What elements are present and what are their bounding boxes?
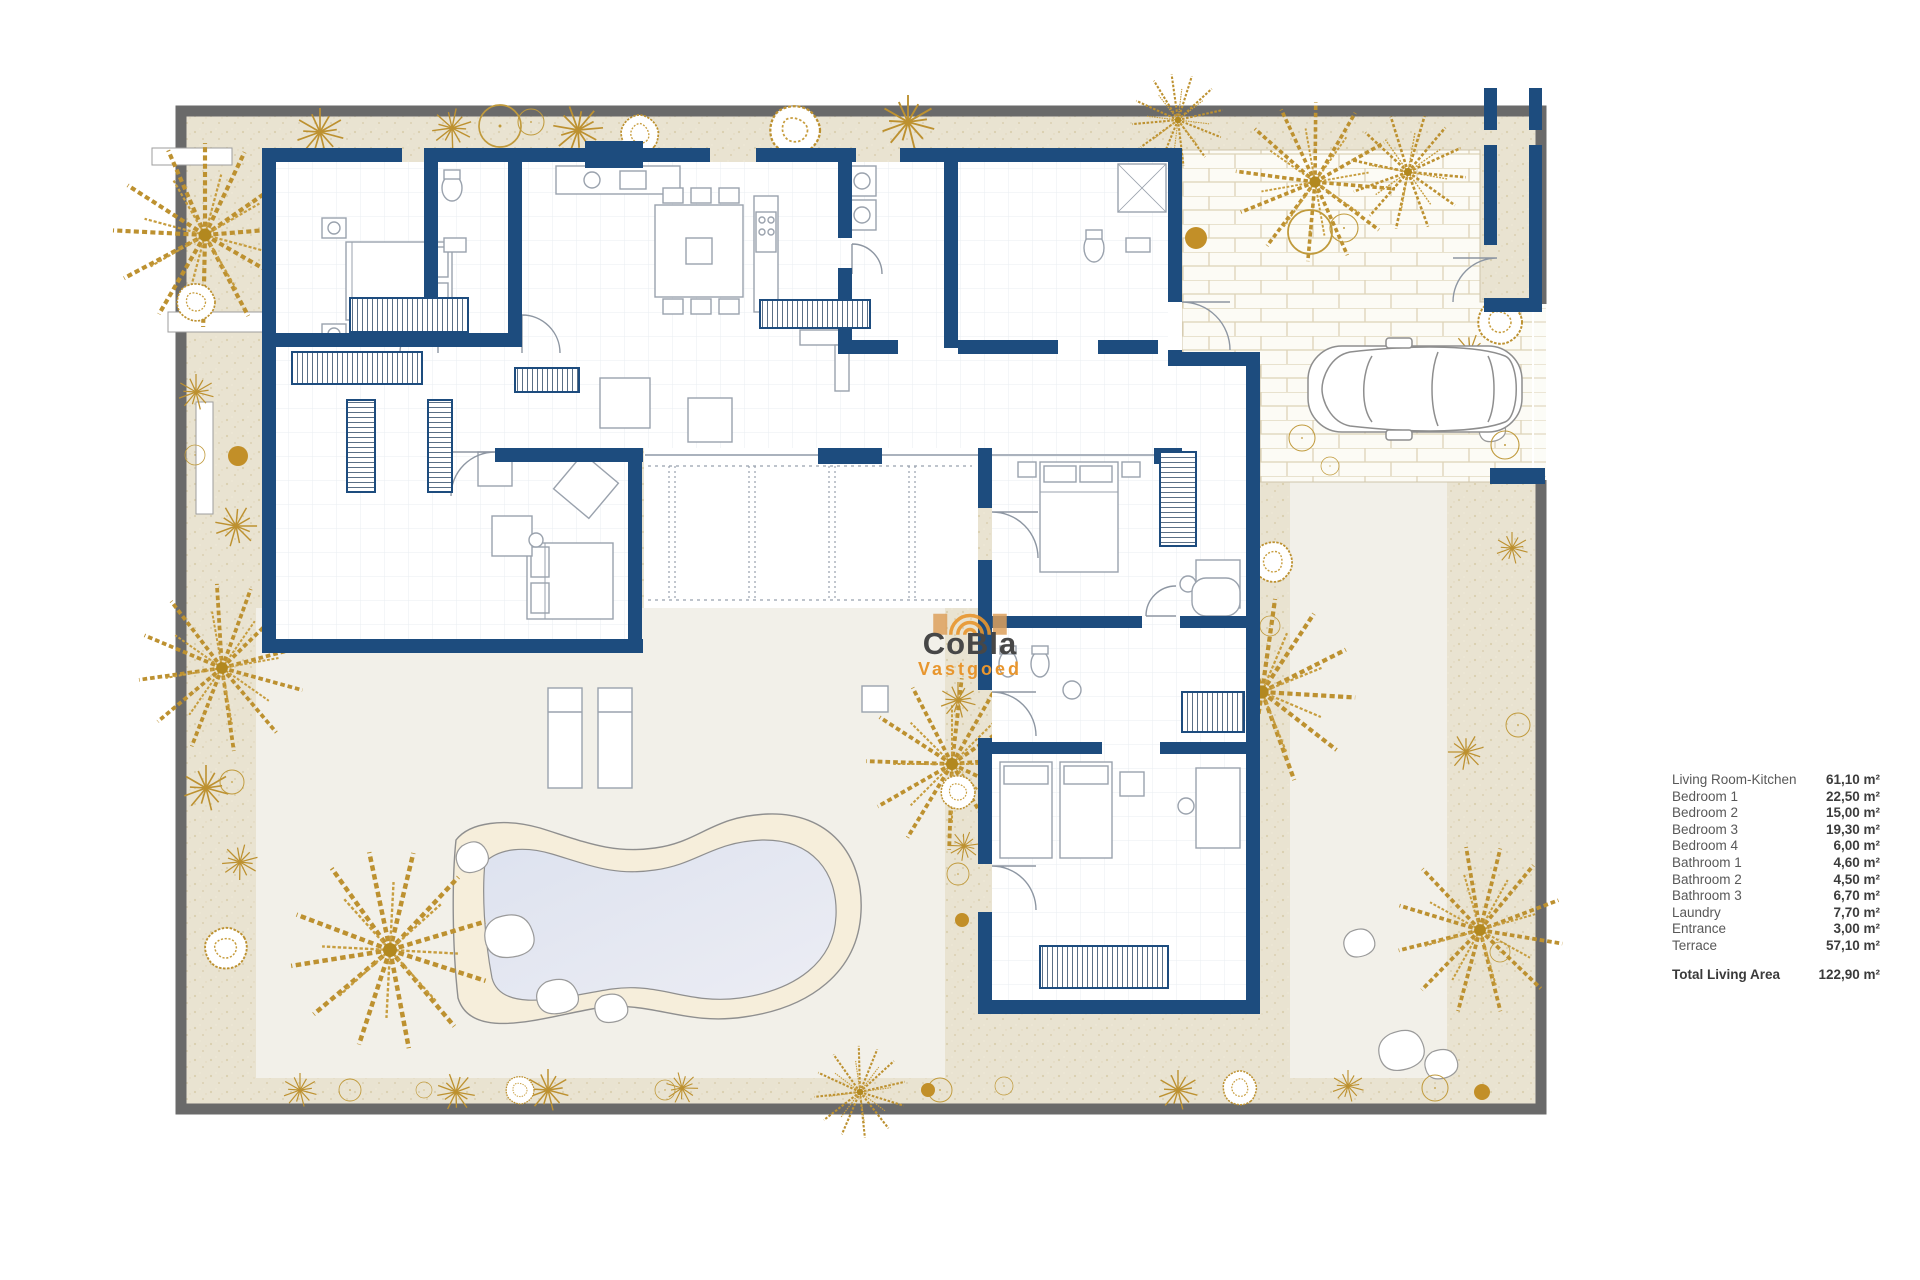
room-label: Laundry <box>1672 905 1721 922</box>
legend-row: Bathroom 1 4,60 m² <box>1672 855 1880 872</box>
legend-row: Living Room-Kitchen 61,10 m² <box>1672 772 1880 789</box>
bathtub <box>1192 578 1240 616</box>
legend-total-row: Total Living Area 122,90 m² <box>1672 967 1880 982</box>
legend-row: Bathroom 2 4,50 m² <box>1672 872 1880 889</box>
legend-row: Bedroom 3 19,30 m² <box>1672 822 1880 839</box>
total-label: Total Living Area <box>1672 967 1780 982</box>
room-area: 19,30 m² <box>1826 822 1880 839</box>
room-area: 6,00 m² <box>1833 838 1880 855</box>
floorplan-drawing <box>0 0 1920 1280</box>
total-area: 122,90 m² <box>1818 967 1880 982</box>
legend-row: Entrance 3,00 m² <box>1672 921 1880 938</box>
plant-dot-icon <box>228 446 248 466</box>
room-label: Bedroom 3 <box>1672 822 1738 839</box>
legend-rows: Living Room-Kitchen 61,10 m² Bedroom 1 2… <box>1672 772 1880 955</box>
room-area: 22,50 m² <box>1826 789 1880 806</box>
room-area: 6,70 m² <box>1833 888 1880 905</box>
area-legend: Living Room-Kitchen 61,10 m² Bedroom 1 2… <box>1672 772 1880 982</box>
room-label: Terrace <box>1672 938 1717 955</box>
legend-row: Bedroom 2 15,00 m² <box>1672 805 1880 822</box>
room-area: 4,60 m² <box>1833 855 1880 872</box>
room-label: Bedroom 4 <box>1672 838 1738 855</box>
room-label: Entrance <box>1672 921 1726 938</box>
room-area: 61,10 m² <box>1826 772 1880 789</box>
room-label: Bathroom 3 <box>1672 888 1742 905</box>
legend-row: Bedroom 1 22,50 m² <box>1672 789 1880 806</box>
sun-lounger <box>548 688 582 788</box>
legend-row: Laundry 7,70 m² <box>1672 905 1880 922</box>
room-label: Bathroom 2 <box>1672 872 1742 889</box>
room-label: Bedroom 1 <box>1672 789 1738 806</box>
floorplan-page: CoBla Vastgoed Living Room-Kitchen 61,10… <box>0 0 1920 1280</box>
legend-row: Terrace 57,10 m² <box>1672 938 1880 955</box>
legend-row: Bathroom 3 6,70 m² <box>1672 888 1880 905</box>
room-area: 4,50 m² <box>1833 872 1880 889</box>
bush-icon <box>770 106 820 155</box>
walkway-area <box>1290 482 1447 1078</box>
room-label: Living Room-Kitchen <box>1672 772 1797 789</box>
room-area: 3,00 m² <box>1833 921 1880 938</box>
room-area: 15,00 m² <box>1826 805 1880 822</box>
room-label: Bathroom 1 <box>1672 855 1742 872</box>
room-label: Bedroom 2 <box>1672 805 1738 822</box>
legend-row: Bedroom 4 6,00 m² <box>1672 838 1880 855</box>
room-area: 7,70 m² <box>1833 905 1880 922</box>
car-icon <box>1308 338 1522 440</box>
room-area: 57,10 m² <box>1826 938 1880 955</box>
